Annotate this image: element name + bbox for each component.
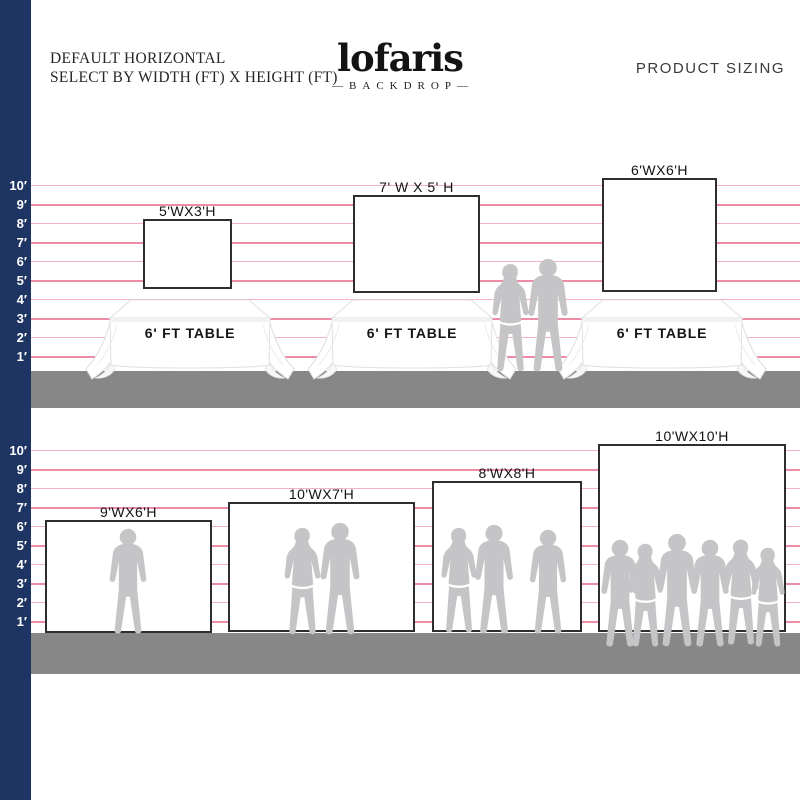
ruler-label-top-9ft: 9′ bbox=[0, 197, 27, 213]
table-2: 6' FT TABLE bbox=[307, 299, 517, 383]
size-select-heading-line2: SELECT BY WIDTH (FT) X HEIGHT (FT) bbox=[50, 68, 338, 87]
ruler-label-bottom-3ft: 3′ bbox=[0, 576, 27, 592]
page-title: PRODUCT SIZING bbox=[636, 60, 785, 77]
backdrop-10x7-label: 10'WX7'H bbox=[190, 486, 453, 502]
table-2-label: 6' FT TABLE bbox=[307, 325, 517, 341]
backdrop-7x5: 7' W X 5' H bbox=[353, 195, 480, 293]
table-1-label: 6' FT TABLE bbox=[85, 325, 295, 341]
ruler-label-top-3ft: 3′ bbox=[0, 311, 27, 327]
tablecloth-graphic bbox=[557, 299, 767, 383]
backdrop-8x8-label: 8'WX8'H bbox=[394, 465, 620, 481]
size-select-heading: DEFAULT HORIZONTAL SELECT BY WIDTH (FT) … bbox=[50, 49, 338, 87]
brand-name: lofaris bbox=[310, 38, 490, 78]
backdrop-10x10-label: 10'WX10'H bbox=[560, 428, 800, 444]
size-select-heading-line1: DEFAULT HORIZONTAL bbox=[50, 49, 338, 68]
tablecloth-graphic bbox=[85, 299, 295, 383]
table-3: 6' FT TABLE bbox=[557, 299, 767, 383]
ruler-label-top-7ft: 7′ bbox=[0, 235, 27, 251]
backdrop-6x6: 6'WX6'H bbox=[602, 178, 717, 292]
backdrop-6x6-label: 6'WX6'H bbox=[564, 162, 755, 178]
couple-silhouette-top bbox=[487, 257, 573, 375]
backdrop-5x3-label: 5'WX3'H bbox=[105, 203, 270, 219]
table-3-label: 6' FT TABLE bbox=[557, 325, 767, 341]
tablecloth-graphic bbox=[307, 299, 517, 383]
ruler-bar bbox=[0, 0, 31, 800]
ruler-label-top-8ft: 8′ bbox=[0, 216, 27, 232]
ruler-label-top-2ft: 2′ bbox=[0, 330, 27, 346]
ruler-label-top-10ft: 10′ bbox=[0, 178, 27, 194]
group-silhouette bbox=[596, 532, 790, 652]
ruler-label-bottom-4ft: 4′ bbox=[0, 557, 27, 573]
man-silhouette bbox=[102, 527, 154, 637]
ruler-label-bottom-8ft: 8′ bbox=[0, 481, 27, 497]
ruler-label-bottom-1ft: 1′ bbox=[0, 614, 27, 630]
ruler-label-top-6ft: 6′ bbox=[0, 254, 27, 270]
brand-logo: lofaris —BACKDROP— bbox=[310, 38, 490, 92]
table-1: 6' FT TABLE bbox=[85, 299, 295, 383]
trio-silhouette bbox=[436, 523, 576, 637]
couple-silhouette bbox=[279, 521, 365, 638]
ruler-label-bottom-2ft: 2′ bbox=[0, 595, 27, 611]
ruler-label-bottom-9ft: 9′ bbox=[0, 462, 27, 478]
ruler-label-top-5ft: 5′ bbox=[0, 273, 27, 289]
ruler-label-bottom-6ft: 6′ bbox=[0, 519, 27, 535]
backdrop-9x6-label: 9'WX6'H bbox=[7, 504, 250, 520]
backdrop-5x3: 5'WX3'H bbox=[143, 219, 232, 289]
ruler-label-top-4ft: 4′ bbox=[0, 292, 27, 308]
ruler-label-top-1ft: 1′ bbox=[0, 349, 27, 365]
ruler-label-bottom-5ft: 5′ bbox=[0, 538, 27, 554]
product-sizing-sheet: DEFAULT HORIZONTAL SELECT BY WIDTH (FT) … bbox=[0, 0, 800, 800]
backdrop-7x5-label: 7' W X 5' H bbox=[315, 179, 518, 195]
ruler-label-bottom-10ft: 10′ bbox=[0, 443, 27, 459]
brand-subtitle: —BACKDROP— bbox=[316, 80, 490, 92]
